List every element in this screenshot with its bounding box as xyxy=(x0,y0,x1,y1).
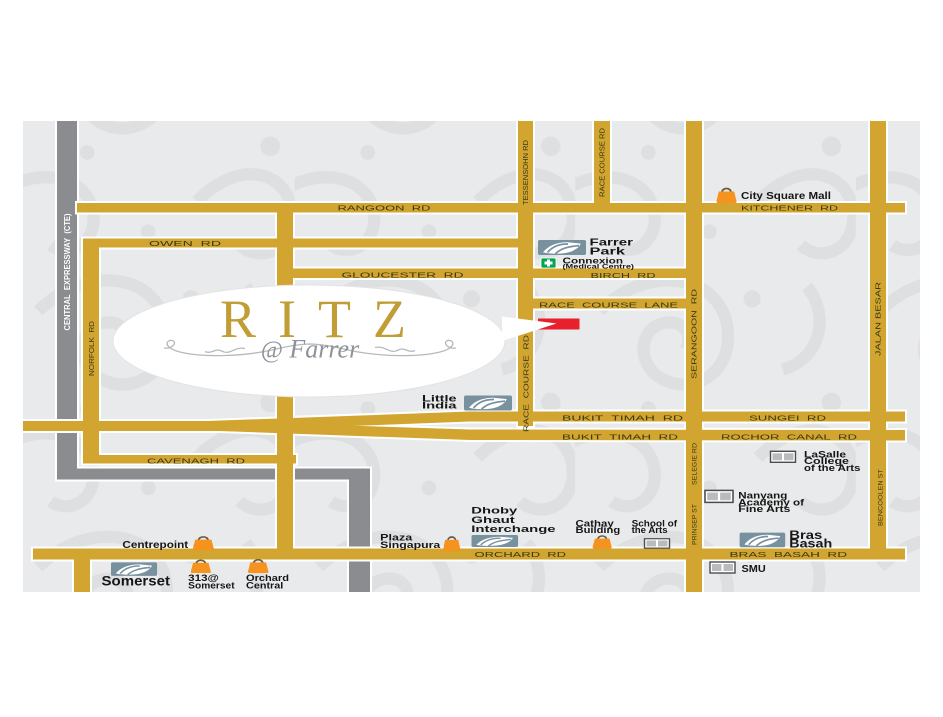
svg-text:Fine Arts: Fine Arts xyxy=(738,504,790,514)
svg-text:@ Farrer: @ Farrer xyxy=(261,335,360,364)
svg-text:Central: Central xyxy=(246,581,283,591)
svg-text:RACE COURSE LANE: RACE COURSE LANE xyxy=(539,302,679,309)
svg-text:SMU: SMU xyxy=(742,564,766,575)
svg-text:the Arts: the Arts xyxy=(632,525,668,535)
svg-text:Centrepoint: Centrepoint xyxy=(122,540,189,551)
svg-text:BUKIT TIMAH RD: BUKIT TIMAH RD xyxy=(562,434,678,441)
svg-text:BRAS BASAH RD: BRAS BASAH RD xyxy=(730,552,848,559)
svg-text:CENTRAL EXPRESSWAY (CTE): CENTRAL EXPRESSWAY (CTE) xyxy=(63,213,72,330)
svg-text:RACE COURSE RD: RACE COURSE RD xyxy=(524,335,531,432)
svg-text:SELEGIE RD: SELEGIE RD xyxy=(692,443,699,485)
svg-text:NORFOLK RD: NORFOLK RD xyxy=(89,321,96,376)
svg-text:BUKIT TIMAH RD: BUKIT TIMAH RD xyxy=(562,415,683,422)
svg-text:City Square Mall: City Square Mall xyxy=(741,191,831,202)
svg-text:of the Arts: of the Arts xyxy=(804,463,860,473)
svg-text:Somerset: Somerset xyxy=(188,581,234,591)
svg-text:BENCOOLEN ST: BENCOOLEN ST xyxy=(878,469,885,526)
svg-text:SUNGEI RD: SUNGEI RD xyxy=(749,415,826,422)
svg-text:Basah: Basah xyxy=(789,537,832,551)
svg-text:PRINSEP ST: PRINSEP ST xyxy=(692,504,699,545)
svg-text:KITCHENER RD: KITCHENER RD xyxy=(741,205,838,212)
svg-text:Singapura: Singapura xyxy=(380,540,441,551)
svg-text:Interchange: Interchange xyxy=(471,524,555,535)
svg-text:BIRCH RD: BIRCH RD xyxy=(591,273,656,280)
svg-text:Somerset: Somerset xyxy=(102,573,171,589)
svg-text:ORCHARD RD: ORCHARD RD xyxy=(475,552,567,559)
svg-text:RANGOON RD: RANGOON RD xyxy=(338,205,431,212)
svg-text:ROCHOR CANAL RD: ROCHOR CANAL RD xyxy=(721,434,857,441)
svg-text:India: India xyxy=(422,400,458,411)
svg-text:(Medical Centre): (Medical Centre) xyxy=(563,264,635,271)
svg-text:CAVENAGH RD: CAVENAGH RD xyxy=(147,458,245,465)
svg-text:OWEN RD: OWEN RD xyxy=(149,241,221,248)
svg-text:RACE COURSE RD: RACE COURSE RD xyxy=(600,128,607,197)
svg-text:Building: Building xyxy=(576,525,621,535)
svg-text:JALAN BESAR: JALAN BESAR xyxy=(876,282,883,356)
svg-text:GLOUCESTER RD: GLOUCESTER RD xyxy=(342,272,464,279)
svg-text:SERANGOON RD: SERANGOON RD xyxy=(692,289,699,379)
svg-text:TESSENSOHN RD: TESSENSOHN RD xyxy=(523,140,530,205)
